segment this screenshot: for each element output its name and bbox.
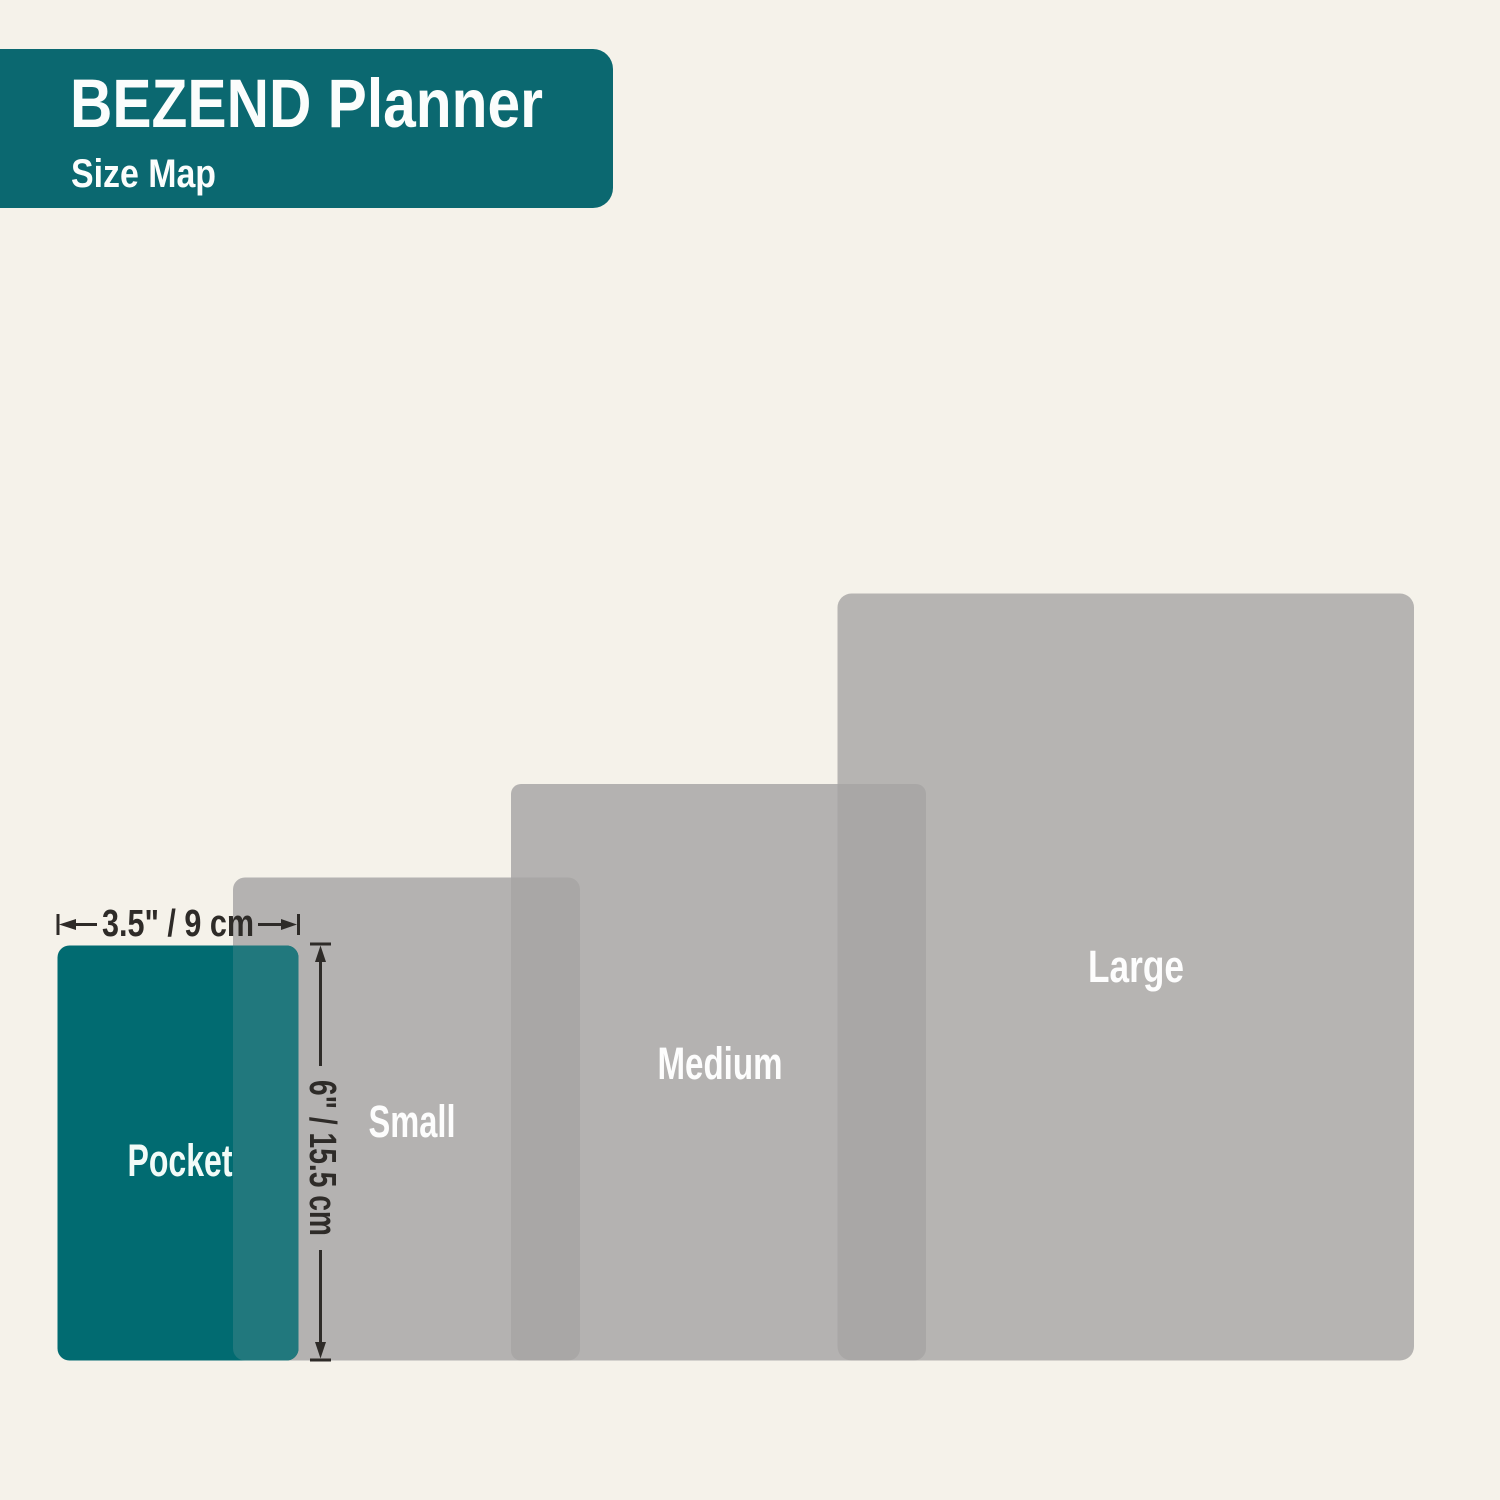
svg-text:Large: Large <box>1088 941 1184 992</box>
svg-text:Small: Small <box>369 1096 456 1147</box>
svg-text:Size Map: Size Map <box>71 152 216 196</box>
svg-text:3.5" / 9 cm: 3.5" / 9 cm <box>102 903 254 945</box>
svg-text:6" / 15.5 cm: 6" / 15.5 cm <box>301 1080 343 1236</box>
svg-text:BEZEND Planner: BEZEND Planner <box>70 65 543 142</box>
svg-text:Pocket: Pocket <box>128 1135 233 1186</box>
svg-text:Medium: Medium <box>658 1038 783 1089</box>
